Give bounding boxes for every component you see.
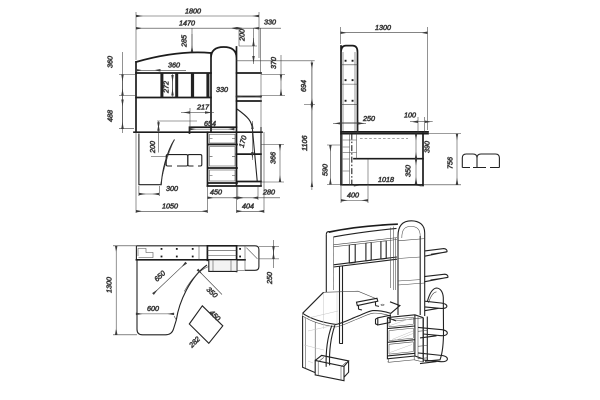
svg-text:350: 350 — [404, 165, 413, 177]
svg-text:330: 330 — [264, 18, 276, 27]
svg-text:1106: 1106 — [300, 136, 309, 151]
svg-text:360: 360 — [168, 61, 180, 70]
svg-text:1470: 1470 — [179, 19, 195, 28]
svg-text:100: 100 — [404, 111, 416, 120]
svg-text:1300: 1300 — [375, 23, 391, 32]
svg-text:390: 390 — [423, 141, 432, 153]
svg-text:250: 250 — [265, 272, 274, 285]
svg-text:404: 404 — [242, 202, 254, 211]
svg-text:1050: 1050 — [162, 202, 178, 211]
svg-text:200: 200 — [238, 29, 247, 42]
svg-text:1300: 1300 — [105, 277, 114, 293]
svg-text:1018: 1018 — [378, 175, 394, 184]
svg-text:250: 250 — [362, 114, 375, 123]
svg-text:450: 450 — [210, 188, 222, 197]
svg-text:694: 694 — [299, 80, 308, 92]
svg-text:285: 285 — [180, 34, 189, 48]
svg-text:400: 400 — [347, 191, 359, 200]
svg-text:654: 654 — [204, 119, 216, 128]
svg-text:366: 366 — [269, 152, 278, 164]
svg-text:1800: 1800 — [185, 7, 201, 16]
svg-text:370: 370 — [269, 57, 278, 69]
svg-text:272: 272 — [162, 81, 171, 94]
svg-text:300: 300 — [166, 184, 178, 193]
svg-text:200: 200 — [148, 141, 157, 154]
svg-text:600: 600 — [147, 304, 159, 313]
svg-text:590: 590 — [321, 164, 330, 176]
svg-text:488: 488 — [106, 110, 115, 122]
svg-text:756: 756 — [446, 157, 455, 169]
svg-text:330: 330 — [216, 85, 228, 94]
svg-text:360: 360 — [106, 56, 115, 68]
svg-text:217: 217 — [196, 103, 210, 112]
